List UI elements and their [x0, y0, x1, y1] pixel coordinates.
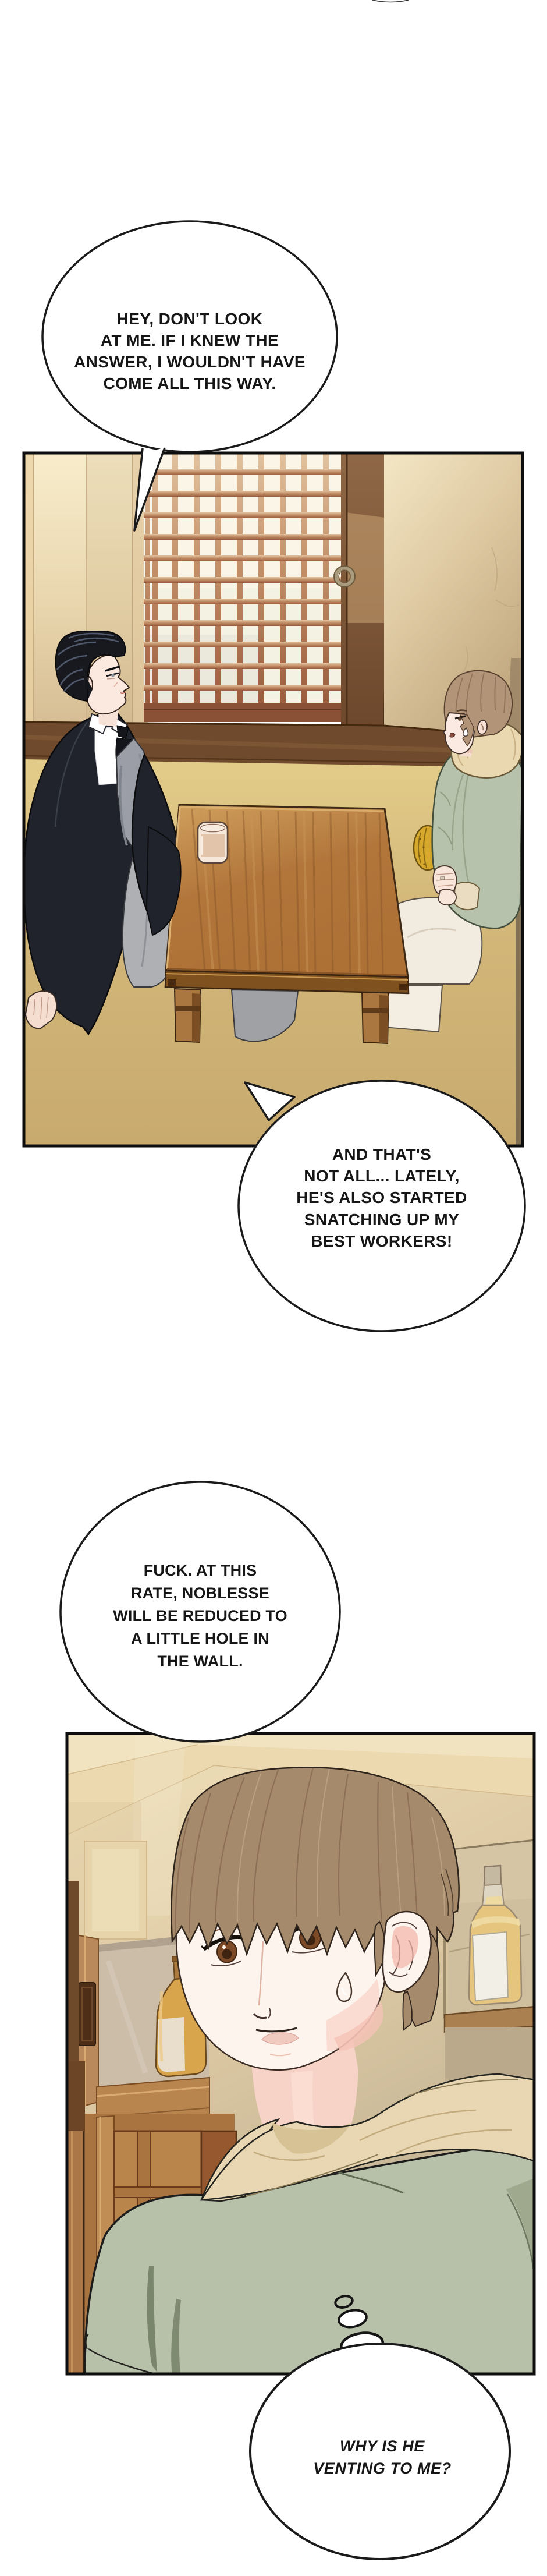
svg-text:RATE, NOBLESSE: RATE, NOBLESSE: [131, 1584, 269, 1602]
svg-text:WILL BE REDUCED TO: WILL BE REDUCED TO: [113, 1607, 287, 1625]
svg-text:AT ME. IF I KNEW THE: AT ME. IF I KNEW THE: [101, 331, 279, 349]
svg-text:WHY IS HE: WHY IS HE: [340, 2437, 425, 2455]
svg-text:HE'S ALSO STARTED: HE'S ALSO STARTED: [296, 1188, 467, 1206]
svg-text:BEST WORKERS!: BEST WORKERS!: [311, 1232, 452, 1250]
svg-text:AND THAT'S: AND THAT'S: [332, 1145, 431, 1163]
svg-text:SNATCHING UP MY: SNATCHING UP MY: [304, 1211, 459, 1229]
svg-text:NOT ALL... LATELY,: NOT ALL... LATELY,: [304, 1167, 460, 1185]
svg-text:A LITTLE HOLE IN: A LITTLE HOLE IN: [131, 1630, 269, 1647]
svg-text:THE WALL.: THE WALL.: [157, 1653, 243, 1670]
svg-text:HEY, DON'T LOOK: HEY, DON'T LOOK: [117, 310, 263, 328]
svg-text:VENTING TO ME?: VENTING TO ME?: [313, 2460, 451, 2477]
svg-text:COME ALL THIS WAY.: COME ALL THIS WAY.: [103, 374, 276, 392]
svg-text:ANSWER, I WOULDN'T HAVE: ANSWER, I WOULDN'T HAVE: [74, 353, 306, 371]
svg-text:FUCK. AT THIS: FUCK. AT THIS: [144, 1562, 257, 1579]
